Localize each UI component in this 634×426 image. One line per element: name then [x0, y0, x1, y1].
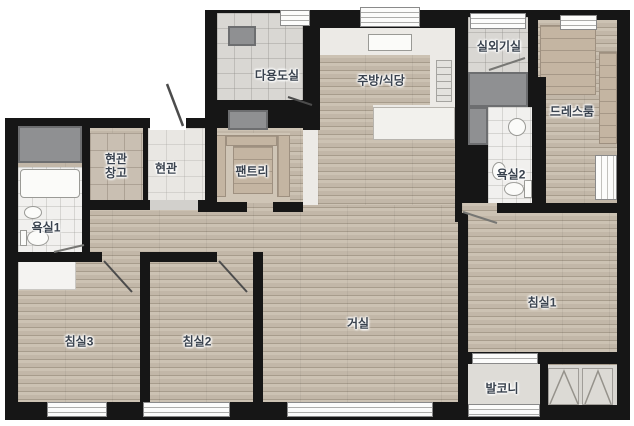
- label-bathroom-2: 욕실2: [497, 166, 526, 183]
- label-utility-room: 다용도실: [255, 67, 299, 84]
- closet-door-panel-left: [548, 368, 579, 405]
- entrance-step: [150, 200, 198, 210]
- bathroom1-sink: [24, 206, 42, 219]
- label-kitchen-dining: 주방/식당: [357, 72, 405, 89]
- kitchen-tall-cabinet: [436, 60, 452, 102]
- bathroom2-toilet: [504, 182, 524, 196]
- closet-door-panel-right: [582, 368, 613, 405]
- floor-plan: 다용도실 주방/식당 실외기실 드레스룸 현관 창고 현관 팬트리 욕실2 욕실…: [0, 0, 634, 426]
- window-utility: [280, 10, 310, 26]
- shower-icon: [508, 118, 526, 136]
- wall: [143, 252, 217, 262]
- kitchen-island: [373, 107, 455, 140]
- bathroom1-toilet-tank: [20, 230, 27, 246]
- label-bedroom-3: 침실3: [65, 333, 94, 350]
- window-outdoor-unit: [470, 13, 526, 29]
- wall: [273, 202, 303, 212]
- window-bedroom2: [143, 402, 230, 417]
- label-entrance-storage: 현관 창고: [101, 153, 131, 181]
- label-bathroom-1: 욕실1: [32, 219, 61, 236]
- window-living: [287, 402, 433, 417]
- label-bedroom-2: 침실2: [183, 333, 212, 350]
- wardrobe-top: [540, 25, 596, 95]
- wall: [205, 118, 217, 210]
- window-balcony-inner: [472, 353, 538, 364]
- bathtub: [20, 169, 80, 198]
- entrance-door-opening: [150, 114, 186, 130]
- wall: [143, 128, 148, 208]
- wall: [458, 230, 468, 402]
- wall: [545, 405, 617, 420]
- wall: [540, 362, 548, 408]
- wall: [217, 100, 290, 110]
- window-dressroom: [560, 15, 597, 30]
- wall: [205, 202, 247, 212]
- label-balcony: 발코니: [485, 380, 518, 397]
- wall: [5, 252, 102, 262]
- label-bedroom-1: 침실1: [528, 294, 557, 311]
- floor-kitchen-wood-lower: [318, 140, 458, 205]
- pantry-cabinet-right: [277, 135, 290, 197]
- kitchen-sink: [368, 34, 412, 51]
- bathroom2-toilet-tank: [524, 180, 532, 198]
- label-living-room: 거실: [347, 315, 369, 332]
- doorway-bedroom1: [462, 203, 497, 213]
- window-balcony-outer: [468, 404, 540, 417]
- shaft-upper: [468, 72, 528, 107]
- wall: [303, 13, 320, 130]
- pantry-cabinet-top: [226, 135, 277, 146]
- label-pantry: 팬트리: [235, 163, 268, 180]
- duct-box: [228, 110, 268, 130]
- label-entrance: 현관: [155, 160, 177, 177]
- wall: [532, 77, 546, 213]
- shaft-side: [468, 107, 488, 145]
- washer-unit: [228, 26, 256, 46]
- wall: [140, 252, 150, 402]
- window-right-wall: [595, 155, 617, 200]
- wardrobe-right: [599, 52, 617, 144]
- ac-unit-box: [18, 126, 82, 163]
- wall: [253, 252, 263, 402]
- floor-kitchen-wood-side: [318, 103, 373, 143]
- wall: [528, 13, 538, 77]
- wall: [82, 118, 90, 258]
- window-bedroom3: [47, 402, 107, 417]
- label-outdoor-unit-room: 실외기실: [477, 38, 521, 55]
- wall: [85, 200, 150, 210]
- wall: [455, 13, 468, 222]
- window-kitchen: [360, 7, 420, 27]
- label-dress-room: 드레스룸: [550, 103, 594, 120]
